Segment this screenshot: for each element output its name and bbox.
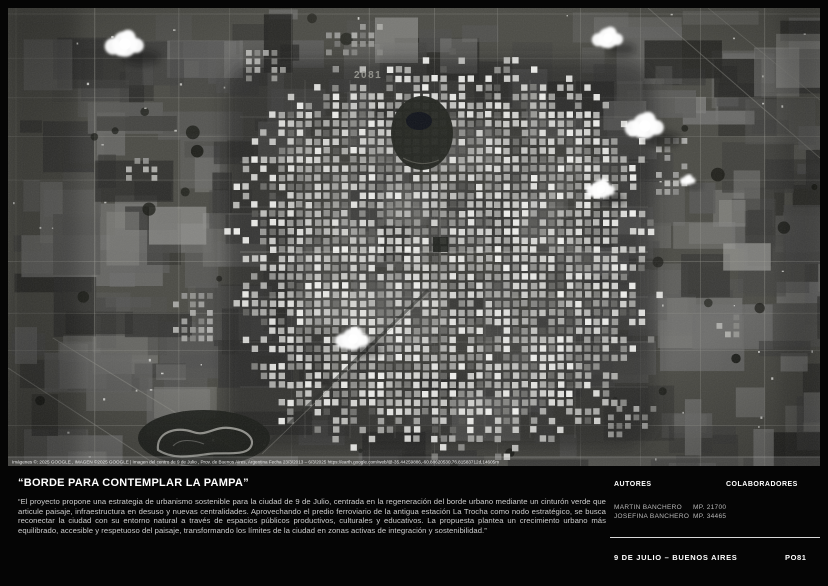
author-registration: MP. 34465 [693,513,726,520]
competition-board: Imágenes ©: 2025 GOOGLE , IMAGEN ©2025 G… [0,0,828,586]
author-registration: MP. 21700 [693,504,726,511]
satellite-image: Imágenes ©: 2025 GOOGLE , IMAGEN ©2025 G… [8,8,820,466]
footer-location: 9 DE JULIO – BUENOS AIRES [614,553,738,562]
footer-code: PO81 [785,553,807,562]
satellite-svg: Imágenes ©: 2025 GOOGLE , IMAGEN ©2025 G… [8,8,820,466]
satellite-watermark: 2081 [354,70,382,81]
satellite-caption: Imágenes ©: 2025 GOOGLE , IMAGEN ©2025 G… [12,459,499,465]
project-title: “BORDE PARA CONTEMPLAR LA PAMPA” [18,477,249,489]
footer-divider [610,537,820,538]
author-name: JOSEFINA BANCHERO [614,513,689,520]
project-description: “El proyecto propone una estrategia de u… [18,497,606,535]
collaborators-heading: COLABORADORES [726,481,798,488]
author-name: MARTIN BANCHERO [614,504,682,511]
authors-heading: AUTORES [614,481,652,488]
